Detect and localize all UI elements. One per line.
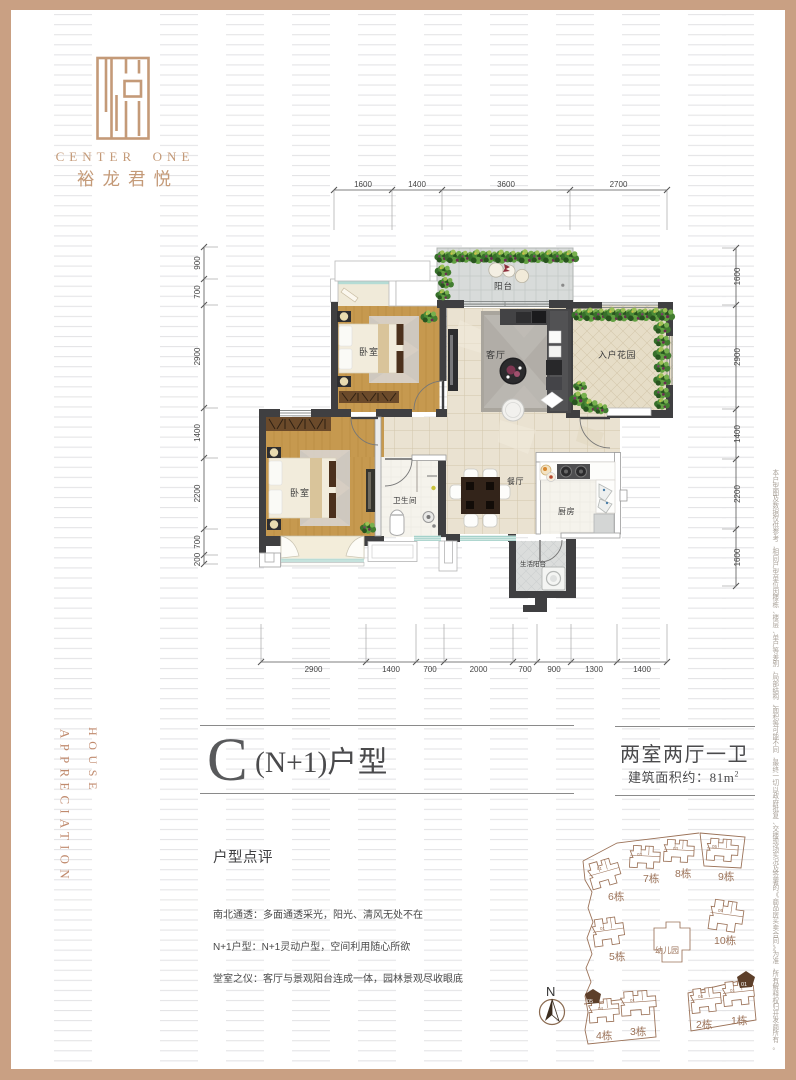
svg-text:01: 01 bbox=[730, 988, 736, 993]
svg-text:700: 700 bbox=[193, 535, 202, 549]
svg-text:900: 900 bbox=[193, 256, 202, 270]
svg-text:1400: 1400 bbox=[733, 425, 742, 443]
svg-text:3栋: 3栋 bbox=[630, 1025, 647, 1038]
svg-text:6栋: 6栋 bbox=[608, 890, 625, 903]
svg-text:1300: 1300 bbox=[585, 665, 603, 674]
svg-text:200: 200 bbox=[193, 552, 202, 566]
svg-text:5栋: 5栋 bbox=[609, 950, 626, 963]
svg-text:卧室: 卧室 bbox=[290, 487, 310, 498]
svg-text:2900: 2900 bbox=[733, 348, 742, 366]
svg-text:1400: 1400 bbox=[382, 665, 400, 674]
svg-text:餐厅: 餐厅 bbox=[507, 477, 524, 486]
svg-text:700: 700 bbox=[518, 665, 532, 674]
svg-text:厨房: 厨房 bbox=[558, 506, 575, 516]
svg-text:05: 05 bbox=[712, 844, 718, 849]
svg-text:阳台: 阳台 bbox=[494, 281, 513, 291]
svg-text:03: 03 bbox=[637, 852, 643, 857]
svg-text:04: 04 bbox=[598, 1006, 604, 1011]
svg-text:2900: 2900 bbox=[305, 665, 323, 674]
svg-text:01: 01 bbox=[630, 998, 636, 1003]
svg-text:生活阳台: 生活阳台 bbox=[520, 559, 546, 568]
svg-text:2000: 2000 bbox=[470, 665, 488, 674]
svg-text:1400: 1400 bbox=[633, 665, 651, 674]
svg-text:01: 01 bbox=[597, 866, 603, 871]
svg-text:卫生间: 卫生间 bbox=[393, 495, 417, 505]
svg-text:700: 700 bbox=[193, 285, 202, 299]
svg-text:幼儿园: 幼儿园 bbox=[655, 945, 679, 955]
svg-text:4栋: 4栋 bbox=[596, 1029, 613, 1042]
svg-text:2栋: 2栋 bbox=[696, 1018, 713, 1031]
svg-text:1栋: 1栋 bbox=[731, 1014, 748, 1027]
svg-text:04: 04 bbox=[698, 994, 704, 999]
svg-text:1600: 1600 bbox=[733, 548, 742, 566]
svg-text:2200: 2200 bbox=[193, 484, 202, 502]
svg-text:3600: 3600 bbox=[497, 180, 515, 189]
svg-text:8栋: 8栋 bbox=[675, 867, 692, 880]
svg-text:卧室: 卧室 bbox=[359, 346, 379, 357]
svg-text:入户花园: 入户花园 bbox=[598, 349, 636, 360]
svg-text:1400: 1400 bbox=[408, 180, 426, 189]
svg-text:05: 05 bbox=[587, 999, 593, 1005]
svg-text:2900: 2900 bbox=[193, 347, 202, 365]
svg-text:2700: 2700 bbox=[610, 180, 628, 189]
svg-text:900: 900 bbox=[547, 665, 561, 674]
svg-text:700: 700 bbox=[423, 665, 437, 674]
svg-text:05: 05 bbox=[718, 908, 724, 913]
svg-text:03: 03 bbox=[673, 846, 679, 851]
svg-text:客厅: 客厅 bbox=[486, 349, 506, 360]
svg-text:1600: 1600 bbox=[354, 180, 372, 189]
svg-text:1600: 1600 bbox=[733, 267, 742, 285]
svg-text:1400: 1400 bbox=[193, 424, 202, 442]
svg-text:2200: 2200 bbox=[733, 485, 742, 503]
svg-text:N: N bbox=[546, 984, 555, 999]
svg-text:7栋: 7栋 bbox=[643, 872, 660, 885]
svg-text:10栋: 10栋 bbox=[714, 934, 737, 947]
svg-text:01: 01 bbox=[741, 982, 747, 988]
svg-text:01: 01 bbox=[600, 926, 606, 931]
svg-text:9栋: 9栋 bbox=[718, 870, 735, 883]
